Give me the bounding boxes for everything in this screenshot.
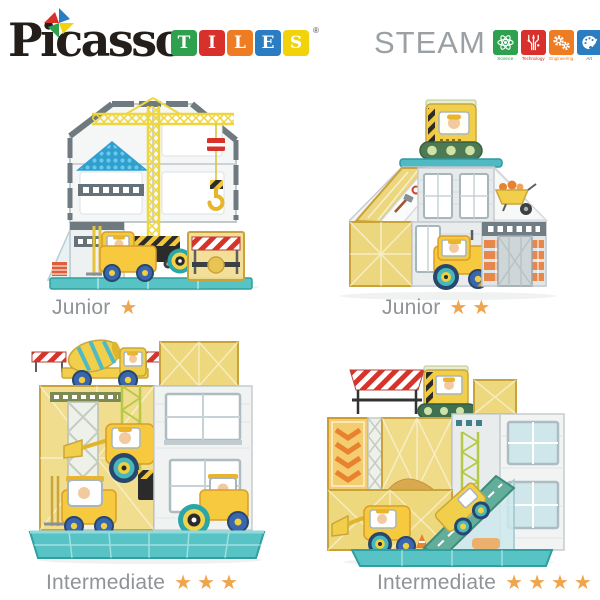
difficulty-stars: ★ xyxy=(119,298,142,318)
roof-platform xyxy=(400,159,502,167)
window xyxy=(424,174,452,218)
steam-label-art: Art xyxy=(586,56,592,62)
steam-label-engineering: Engineering xyxy=(549,56,573,62)
steam-wordmark: STEAM xyxy=(374,27,486,59)
build-photo-intermediate-3 xyxy=(24,328,280,566)
striped-awning xyxy=(350,370,424,414)
chevron-panel xyxy=(328,418,368,490)
steam-label-science: Science xyxy=(497,56,513,62)
difficulty-stars: ★★★ xyxy=(174,573,243,593)
base-plate xyxy=(30,532,264,558)
build-photo-intermediate-4 xyxy=(322,356,576,568)
base-plate xyxy=(352,550,552,566)
window xyxy=(164,394,242,445)
cement-mixer-truck xyxy=(62,335,148,389)
gold-tile xyxy=(350,222,412,286)
steam-item-technology: Technology xyxy=(521,30,546,62)
gold-tile xyxy=(474,380,516,414)
window xyxy=(508,422,558,464)
crane-trolley xyxy=(207,138,225,151)
difficulty-caption-junior-1: Junior ★ xyxy=(52,295,142,321)
bulldozer xyxy=(420,100,482,159)
tile-letter-s: S xyxy=(283,30,309,56)
garage-door xyxy=(498,236,532,286)
difficulty-caption-junior-2: Junior ★★ xyxy=(382,295,495,321)
scaffold-strip xyxy=(368,418,382,490)
difficulty-level: Junior xyxy=(52,296,110,320)
tiles-wordmark: T I L E S xyxy=(171,30,309,56)
difficulty-level: Intermediate xyxy=(46,571,165,595)
difficulty-caption-intermediate-4: Intermediate ★★★★ xyxy=(377,570,597,596)
gold-tile xyxy=(160,342,238,386)
difficulty-stars: ★★ xyxy=(449,298,495,318)
parked-car xyxy=(472,538,500,549)
tile-letter-i: I xyxy=(199,30,225,56)
steam-item-art: Art xyxy=(577,30,600,62)
tile-letter-l: L xyxy=(227,30,253,56)
build-photo-junior-2 xyxy=(320,90,576,302)
garage xyxy=(482,222,546,286)
window xyxy=(460,174,488,218)
difficulty-level: Junior xyxy=(382,296,440,320)
tile-letter-e: E xyxy=(255,30,281,56)
atom-icon xyxy=(493,30,518,55)
difficulty-caption-intermediate-3: Intermediate ★★★ xyxy=(46,570,243,596)
steam-item-engineering: Engineering xyxy=(549,30,574,62)
page: Picasso T I L E S ® STEAM xyxy=(0,0,600,600)
gears-icon xyxy=(549,30,574,55)
window xyxy=(508,482,558,528)
palette-icon xyxy=(577,30,600,55)
striped-barrier xyxy=(32,352,66,372)
circuit-icon xyxy=(521,30,546,55)
steam-icon-row: Science Technology xyxy=(493,30,600,62)
picassotiles-logo: Picasso T I L E S ® xyxy=(8,8,338,74)
build-photo-junior-1 xyxy=(28,94,280,292)
steam-badge: STEAM Science xyxy=(374,27,600,62)
difficulty-stars: ★★★★ xyxy=(505,573,597,593)
difficulty-level: Intermediate xyxy=(377,571,496,595)
gold-wall xyxy=(382,418,452,490)
bulldozer xyxy=(418,366,476,418)
barrier-panel xyxy=(188,232,244,280)
tile-letter-t: T xyxy=(171,30,197,56)
steam-label-technology: Technology xyxy=(522,56,545,62)
pinwheel-icon xyxy=(42,6,76,40)
steam-item-science: Science xyxy=(493,30,518,62)
registered-mark: ® xyxy=(313,26,319,35)
brand-wordmark: Picasso xyxy=(8,12,183,68)
